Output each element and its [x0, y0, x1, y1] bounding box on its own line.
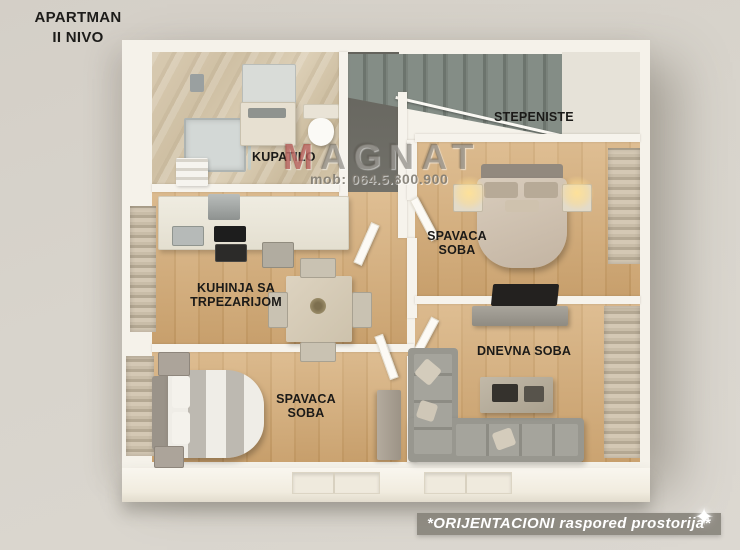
- curtain: [608, 148, 640, 264]
- vanity-mirror: [242, 64, 296, 104]
- orientation-note: *ORIJENTACIONI raspored prostorija*: [417, 513, 721, 535]
- curtain: [126, 356, 154, 456]
- nightstand: [154, 446, 184, 468]
- sofa-cushions: [456, 424, 578, 456]
- table-plant: [310, 298, 326, 314]
- cooktop: [214, 226, 246, 242]
- table-lamp: [560, 176, 594, 210]
- page-title: APARTMAN II NIVO: [16, 8, 140, 49]
- floor-plan-image: APARTMAN II NIVO: [0, 0, 740, 550]
- watermark-phone: mob: 064.5.800.900: [310, 171, 448, 187]
- tv-stand: [472, 306, 568, 326]
- room-label-kuhinja: KUHINJA SA TRPEZARIJOM: [175, 281, 297, 309]
- pillow: [172, 412, 190, 444]
- building-front-wall: [122, 468, 650, 502]
- shower-head: [190, 74, 204, 92]
- range-hood: [208, 194, 240, 220]
- fridge: [262, 242, 294, 268]
- pillow: [524, 182, 558, 198]
- coffee-table-tray: [524, 386, 544, 402]
- front-window: [292, 472, 380, 494]
- front-window: [424, 472, 512, 494]
- window-mullion: [333, 473, 335, 493]
- dining-chair: [300, 258, 336, 278]
- pillow: [172, 376, 190, 408]
- room-label-stepeniste: STEPENISTE: [494, 110, 574, 124]
- pillow: [505, 200, 539, 212]
- table-lamp: [452, 176, 486, 210]
- sink-basin: [248, 108, 286, 118]
- coffee-table-books: [492, 384, 518, 402]
- room-label-spavaca-soba-1: SPAVACA SOBA: [411, 229, 503, 257]
- pillow: [484, 182, 518, 198]
- window-mullion: [465, 473, 467, 493]
- toilet-cistern: [303, 104, 339, 119]
- wall: [152, 344, 414, 352]
- kitchen-sink: [172, 226, 204, 246]
- nightstand: [158, 352, 190, 376]
- curtain: [604, 306, 640, 458]
- room-label-spavaca-soba-2: SPAVACA SOBA: [260, 392, 352, 420]
- dining-chair: [352, 292, 372, 328]
- stair-top-wall-area: [562, 52, 640, 138]
- oven: [215, 244, 247, 262]
- curtain: [130, 206, 156, 332]
- sparkle-icon: ✦: [694, 503, 714, 532]
- towel-stack: [176, 158, 208, 186]
- dining-chair: [300, 342, 336, 362]
- wardrobe-dresser: [377, 390, 401, 460]
- tv: [491, 284, 559, 306]
- room-label-dnevna-soba: DNEVNA SOBA: [477, 344, 571, 358]
